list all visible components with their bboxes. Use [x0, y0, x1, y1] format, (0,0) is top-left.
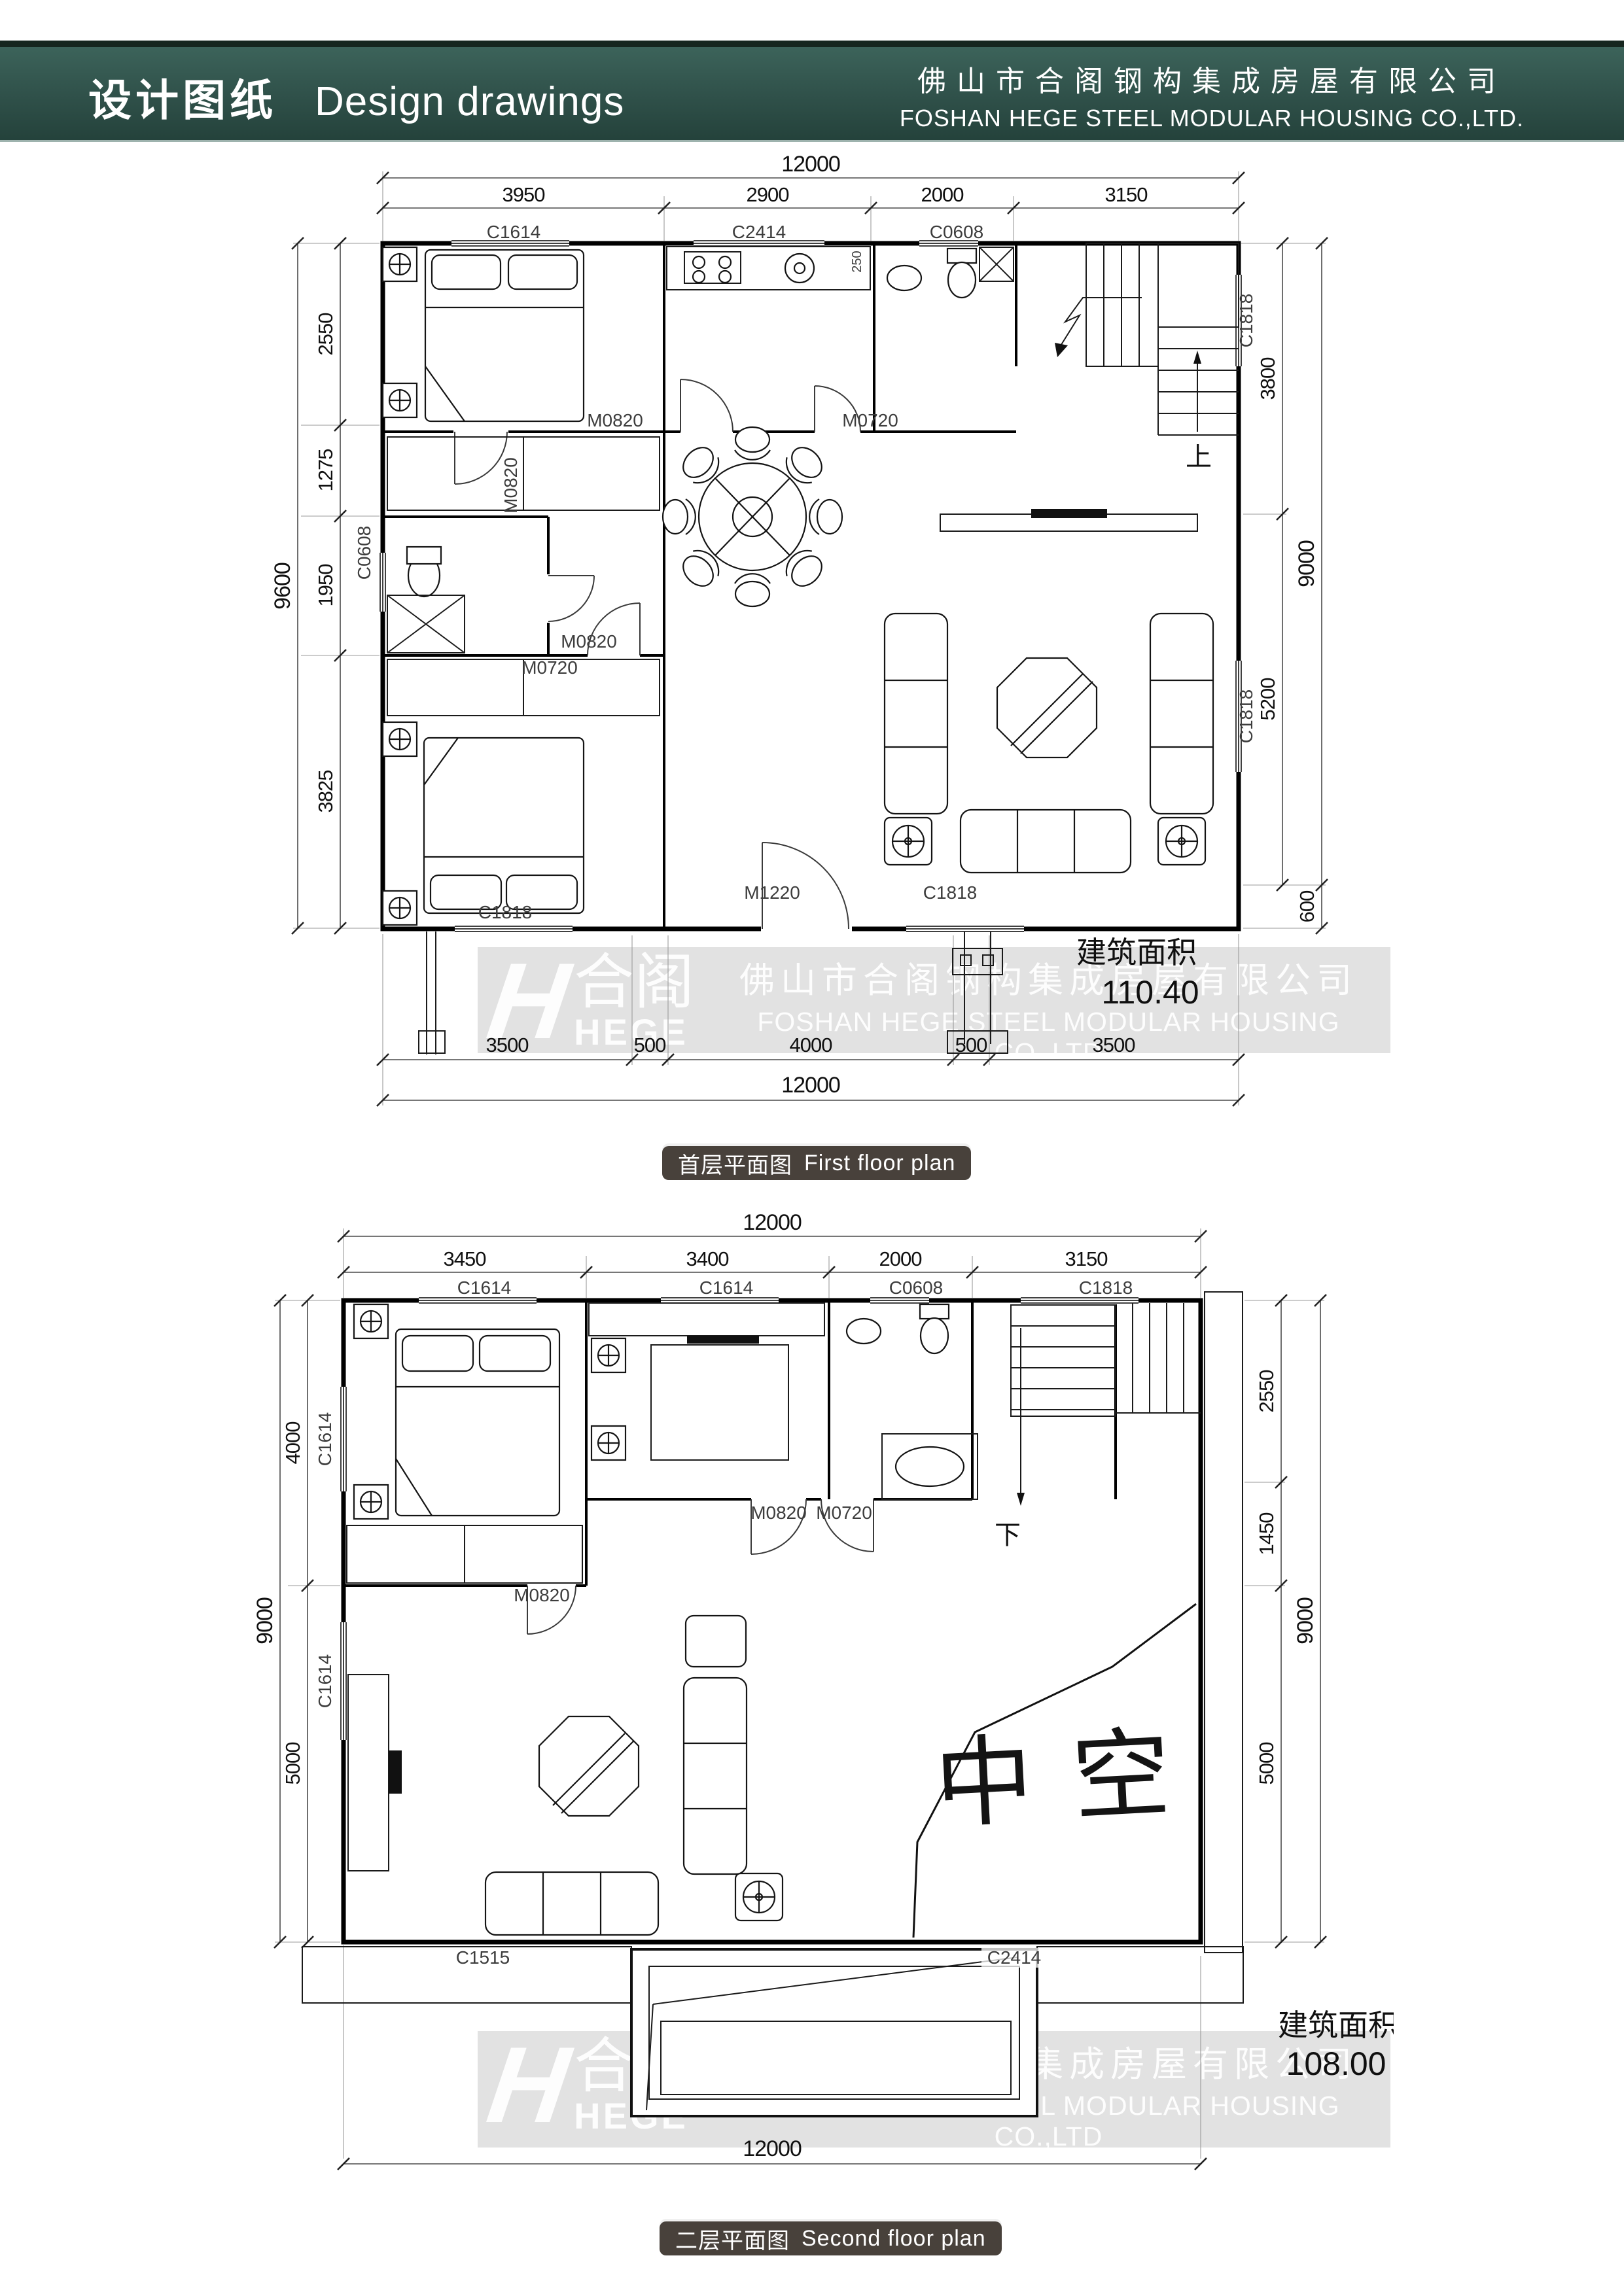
f2-dim: 5000 — [1255, 1742, 1278, 1785]
first-floor-plan-badge: 首层平面图 First floor plan — [662, 1146, 971, 1180]
f2-window-label: C1614 — [457, 1278, 512, 1298]
f1-dim: 3800 — [1256, 357, 1279, 400]
f2-dim: 2550 — [1255, 1370, 1278, 1413]
f1-window-label: C1818 — [923, 882, 978, 903]
f1-dim: 12000 — [781, 1073, 840, 1098]
f1-furniture — [383, 247, 1213, 925]
f1-window-label: C1818 — [1236, 689, 1256, 744]
f2-dim: 3400 — [686, 1247, 730, 1270]
f2-window-label: C1818 — [1079, 1278, 1133, 1298]
f1-stair-direction: 上 — [1186, 443, 1212, 472]
f1-area-note: 建筑面积 110.40 — [1076, 935, 1199, 1011]
f1-window-label: C0608 — [930, 222, 984, 242]
f1-dim: 9600 — [270, 563, 295, 610]
f1-window-label: C1818 — [478, 902, 533, 922]
f1-dim: 3500 — [1093, 1034, 1136, 1056]
f1-door-label: M0820 — [501, 457, 521, 513]
f2-roof-window-label: C1515 — [456, 1947, 510, 1968]
f1-dim: 5200 — [1256, 678, 1279, 721]
first-floor-plan-drawing: 12000 3950 2900 2000 3150 9600 2550 1275… — [249, 150, 1394, 1132]
f2-dim: 3450 — [444, 1247, 487, 1270]
f1-dim: 12000 — [781, 152, 840, 177]
f2-dim: 9000 — [253, 1597, 277, 1644]
f2-window-label: C1614 — [315, 1412, 335, 1467]
second-floor-plan-badge: 二层平面图 Second floor plan — [660, 2221, 1002, 2255]
f1-window-label: C0608 — [354, 526, 374, 580]
f1-dim: 2000 — [921, 183, 964, 206]
f1-dim: 3825 — [314, 771, 337, 813]
f2-furniture — [347, 1303, 978, 1935]
second-floor-badge-cn: 二层平面图 — [675, 2223, 790, 2255]
company-name-en: FOSHAN HEGE STEEL MODULAR HOUSING CO.,LT… — [845, 105, 1578, 132]
f2-dim: 9000 — [1293, 1597, 1318, 1644]
f2-dim: 2000 — [879, 1247, 923, 1270]
f1-stairs — [1055, 243, 1239, 435]
f2-area-value: 108.00 — [1286, 2045, 1386, 2082]
f1-door-label: M0820 — [587, 410, 643, 430]
f1-area-label: 建筑面积 — [1076, 935, 1197, 969]
f1-door-label: M0720 — [842, 410, 898, 430]
f1-dim: 1275 — [314, 449, 337, 492]
f2-door-label: M0820 — [750, 1503, 807, 1523]
f1-dim: 3500 — [486, 1034, 529, 1056]
f2-window-label: C1614 — [315, 1654, 335, 1709]
f2-stair-direction: 下 — [995, 1521, 1021, 1550]
design-sheet: 设计图纸 Design drawings 佛山市合阁钢构集成房屋有限公司 FOS… — [0, 0, 1624, 2296]
sheet-title-en: Design drawings — [315, 78, 624, 125]
f1-dim: 4000 — [790, 1034, 833, 1056]
f1-door-label: M0720 — [521, 657, 578, 678]
f1-area-value: 110.40 — [1101, 974, 1199, 1011]
sheet-title: 设计图纸 Design drawings — [88, 65, 624, 128]
f1-window-label: C1614 — [487, 222, 541, 242]
f2-door-label: M0820 — [514, 1585, 570, 1605]
company-block: 佛山市合阁钢构集成房屋有限公司 FOSHAN HEGE STEEL MODULA… — [845, 58, 1578, 132]
f2-dim: 5000 — [281, 1742, 304, 1785]
f2-area-label: 建筑面积 — [1278, 2008, 1394, 2042]
f1-dim: 600 — [1296, 890, 1318, 922]
f1-micro-dim: 250 — [850, 251, 864, 272]
f2-dim: 3150 — [1065, 1247, 1108, 1270]
f2-window-label: C0608 — [889, 1278, 944, 1298]
f2-void: 中空 — [913, 1604, 1212, 1938]
f2-stairs — [1011, 1303, 1201, 1506]
f1-door-label: M1220 — [744, 882, 800, 903]
f1-dim: 9000 — [1294, 540, 1319, 587]
f1-window-label: C1818 — [1236, 294, 1256, 348]
f2-dim: 4000 — [281, 1421, 304, 1465]
f1-window-label: C2414 — [732, 222, 786, 242]
f2-dim: 12000 — [743, 1210, 802, 1235]
f2-window-label: C1614 — [699, 1278, 754, 1298]
f2-door-label: M0720 — [816, 1503, 872, 1523]
f2-area-note: 建筑面积 108.00 — [1278, 2008, 1394, 2082]
second-floor-plan-drawing: 12000 3450 3400 2000 3150 9000 4000 5000… — [249, 1204, 1394, 2296]
f2-dim: 12000 — [743, 2136, 802, 2161]
first-floor-badge-cn: 首层平面图 — [678, 1147, 792, 1179]
f1-dim: 2900 — [747, 183, 790, 206]
f2-dim: 1450 — [1255, 1512, 1278, 1556]
f1-dim: 1950 — [314, 564, 337, 607]
f2-roof-window-label: C2414 — [987, 1947, 1042, 1968]
f1-door-label: M0820 — [561, 631, 617, 652]
first-floor-badge-en: First floor plan — [804, 1151, 955, 1176]
company-name-cn: 佛山市合阁钢构集成房屋有限公司 — [845, 58, 1578, 99]
header-bar: 设计图纸 Design drawings 佛山市合阁钢构集成房屋有限公司 FOS… — [0, 41, 1624, 140]
f1-dim: 500 — [634, 1034, 666, 1056]
f1-dim: 3950 — [503, 183, 546, 206]
f2-void-label: 中空 — [932, 1716, 1212, 1840]
sheet-title-cn: 设计图纸 — [88, 65, 277, 128]
second-floor-badge-en: Second floor plan — [802, 2226, 986, 2252]
f1-dim: 3150 — [1105, 183, 1148, 206]
f1-dim: 2550 — [314, 313, 337, 356]
